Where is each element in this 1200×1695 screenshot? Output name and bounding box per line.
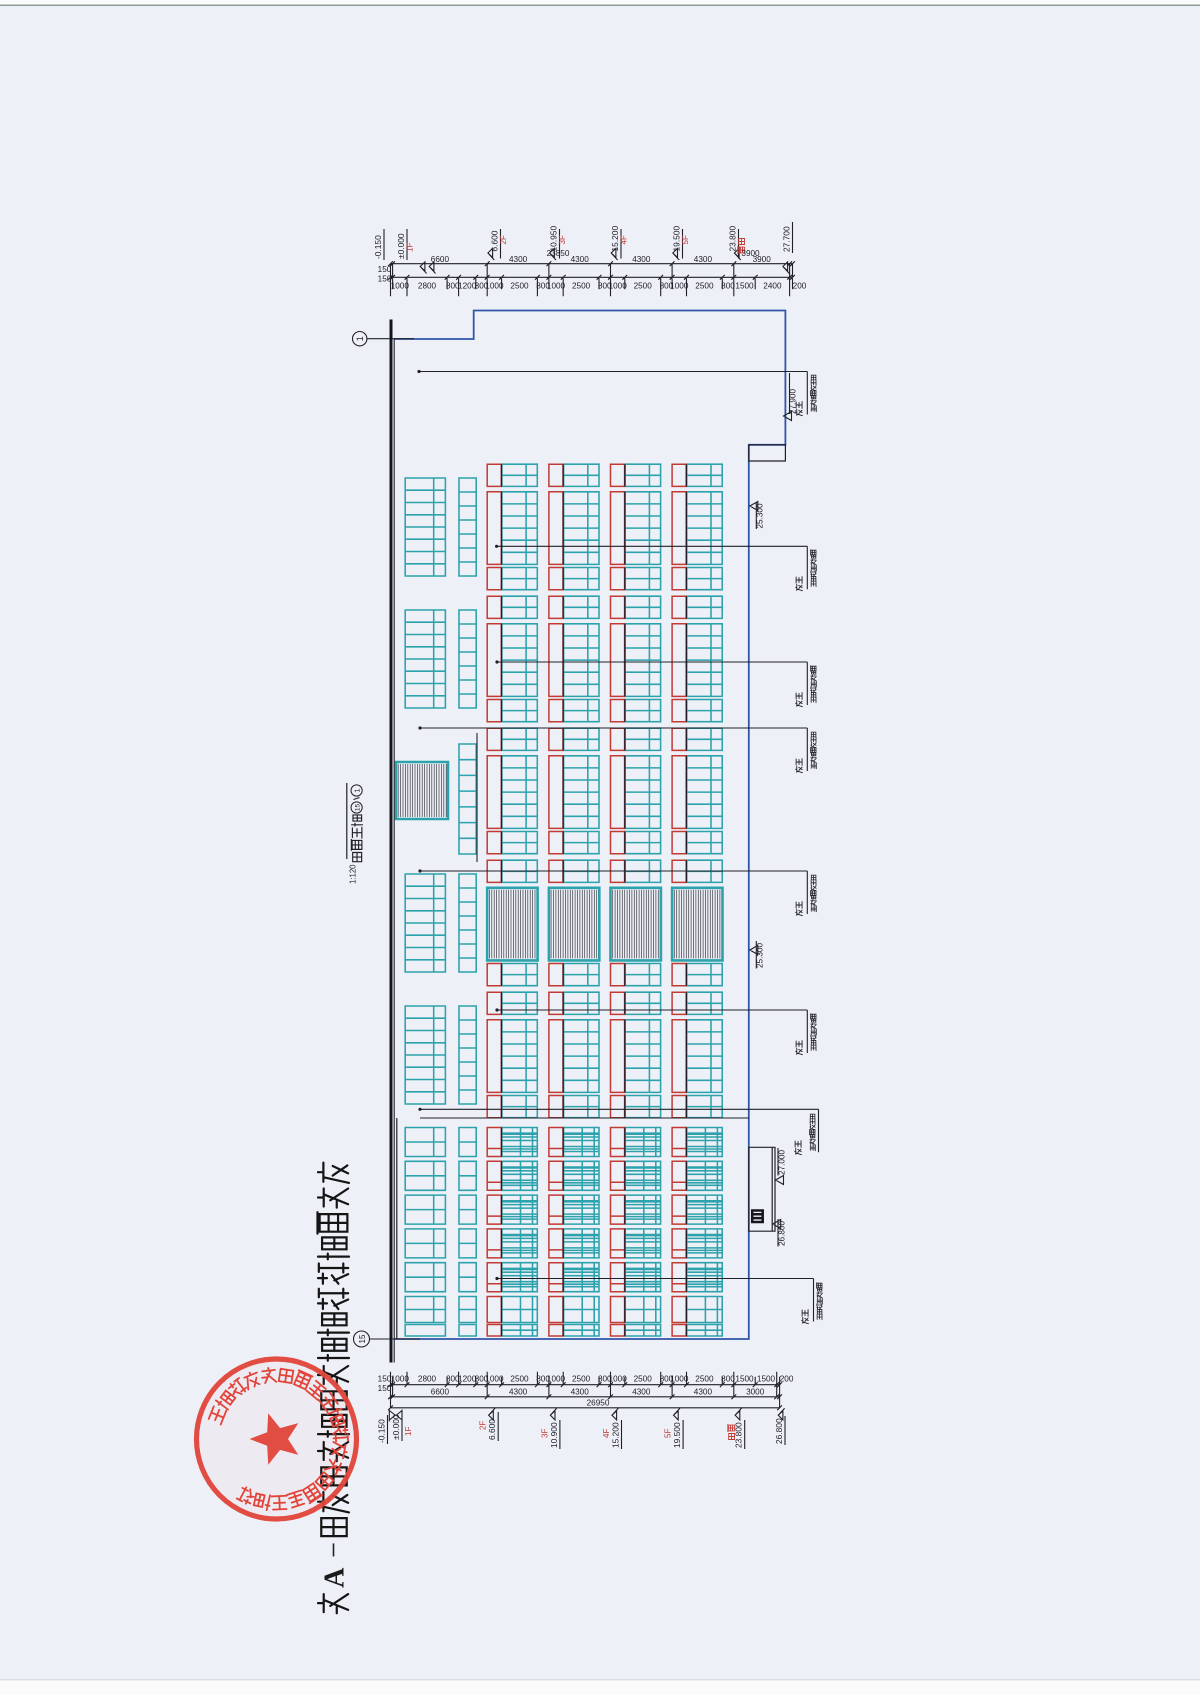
svg-text:3900: 3900	[741, 249, 760, 258]
svg-text:4300: 4300	[694, 1387, 713, 1396]
svg-text:1F: 1F	[404, 1427, 413, 1436]
svg-text:2400: 2400	[763, 282, 782, 291]
svg-text:5F: 5F	[681, 235, 690, 244]
svg-text:150: 150	[378, 1375, 392, 1384]
svg-text:4F: 4F	[602, 1429, 611, 1438]
svg-text:1000: 1000	[485, 282, 504, 291]
svg-text:23.800: 23.800	[734, 1422, 744, 1448]
svg-text:1500: 1500	[735, 282, 754, 291]
svg-text:4F: 4F	[619, 235, 628, 244]
svg-text:1000: 1000	[609, 282, 628, 291]
svg-text:1F: 1F	[405, 243, 414, 252]
svg-text:4300: 4300	[571, 255, 590, 264]
svg-text:1500: 1500	[735, 1375, 754, 1384]
svg-text:26.800: 26.800	[774, 1418, 784, 1444]
svg-text:25.300: 25.300	[756, 503, 765, 528]
svg-text:1000: 1000	[609, 1375, 628, 1384]
svg-text:3F: 3F	[540, 1429, 549, 1438]
svg-text:2500: 2500	[572, 1375, 591, 1384]
svg-text:2800: 2800	[418, 282, 437, 291]
svg-text:1000: 1000	[547, 282, 566, 291]
svg-text:27.700: 27.700	[782, 226, 792, 252]
svg-text:1500: 1500	[757, 1375, 776, 1384]
svg-text:26950: 26950	[587, 1399, 610, 1408]
svg-text:150: 150	[378, 265, 392, 274]
svg-text:1: 1	[355, 336, 365, 341]
svg-text:6600: 6600	[431, 1387, 450, 1396]
svg-text:6600: 6600	[431, 255, 450, 264]
svg-text:1:120: 1:120	[349, 864, 358, 884]
svg-text:2800: 2800	[418, 1375, 437, 1384]
svg-text:1000: 1000	[485, 1375, 504, 1384]
svg-text:26.800: 26.800	[778, 1221, 787, 1246]
svg-text:23.800: 23.800	[728, 226, 738, 252]
svg-text:2500: 2500	[510, 1375, 529, 1384]
svg-text:25.300: 25.300	[756, 943, 765, 968]
svg-text:800: 800	[721, 1375, 735, 1384]
svg-text:4300: 4300	[571, 1387, 590, 1396]
svg-text:15: 15	[354, 804, 361, 812]
svg-text:1: 1	[353, 788, 362, 792]
svg-text:2500: 2500	[695, 282, 714, 291]
svg-text:800: 800	[721, 282, 735, 291]
svg-text:2500: 2500	[695, 1375, 714, 1384]
svg-text:6.600: 6.600	[487, 1419, 497, 1440]
svg-text:4300: 4300	[632, 1387, 651, 1396]
svg-text:1000: 1000	[670, 1375, 689, 1384]
svg-text:A: A	[320, 1567, 351, 1588]
svg-text:200: 200	[780, 1375, 794, 1384]
svg-text:2500: 2500	[634, 1375, 653, 1384]
svg-text:1000: 1000	[547, 1375, 566, 1384]
svg-text:150: 150	[378, 275, 392, 284]
svg-text:19.500: 19.500	[672, 1422, 682, 1448]
svg-text:2F: 2F	[479, 1421, 488, 1430]
svg-text:1000: 1000	[391, 282, 410, 291]
svg-text:2F: 2F	[499, 235, 508, 244]
svg-text:4300: 4300	[632, 255, 651, 264]
svg-text:2500: 2500	[634, 282, 653, 291]
svg-text:1000: 1000	[391, 1375, 410, 1384]
svg-text:27.000: 27.000	[778, 1150, 787, 1175]
svg-text:-0.150: -0.150	[377, 1419, 387, 1443]
svg-text:3F: 3F	[558, 235, 567, 244]
svg-text:27.900: 27.900	[789, 389, 798, 414]
svg-text:2500: 2500	[510, 282, 529, 291]
svg-text:4300: 4300	[509, 255, 528, 264]
svg-text:2500: 2500	[572, 282, 591, 291]
svg-text:1000: 1000	[670, 282, 689, 291]
svg-text:3000: 3000	[746, 1387, 765, 1396]
svg-text:200: 200	[793, 282, 807, 291]
svg-text:4300: 4300	[694, 255, 713, 264]
svg-text:±0.000: ±0.000	[391, 1414, 401, 1440]
svg-text:10.900: 10.900	[549, 1422, 559, 1448]
svg-text:150: 150	[378, 1384, 392, 1393]
svg-text:15.200: 15.200	[611, 1422, 621, 1448]
svg-text:-0.150: -0.150	[373, 235, 383, 259]
svg-text:4300: 4300	[509, 1387, 528, 1396]
svg-text:15: 15	[358, 1334, 367, 1343]
svg-text:5F: 5F	[664, 1429, 673, 1438]
